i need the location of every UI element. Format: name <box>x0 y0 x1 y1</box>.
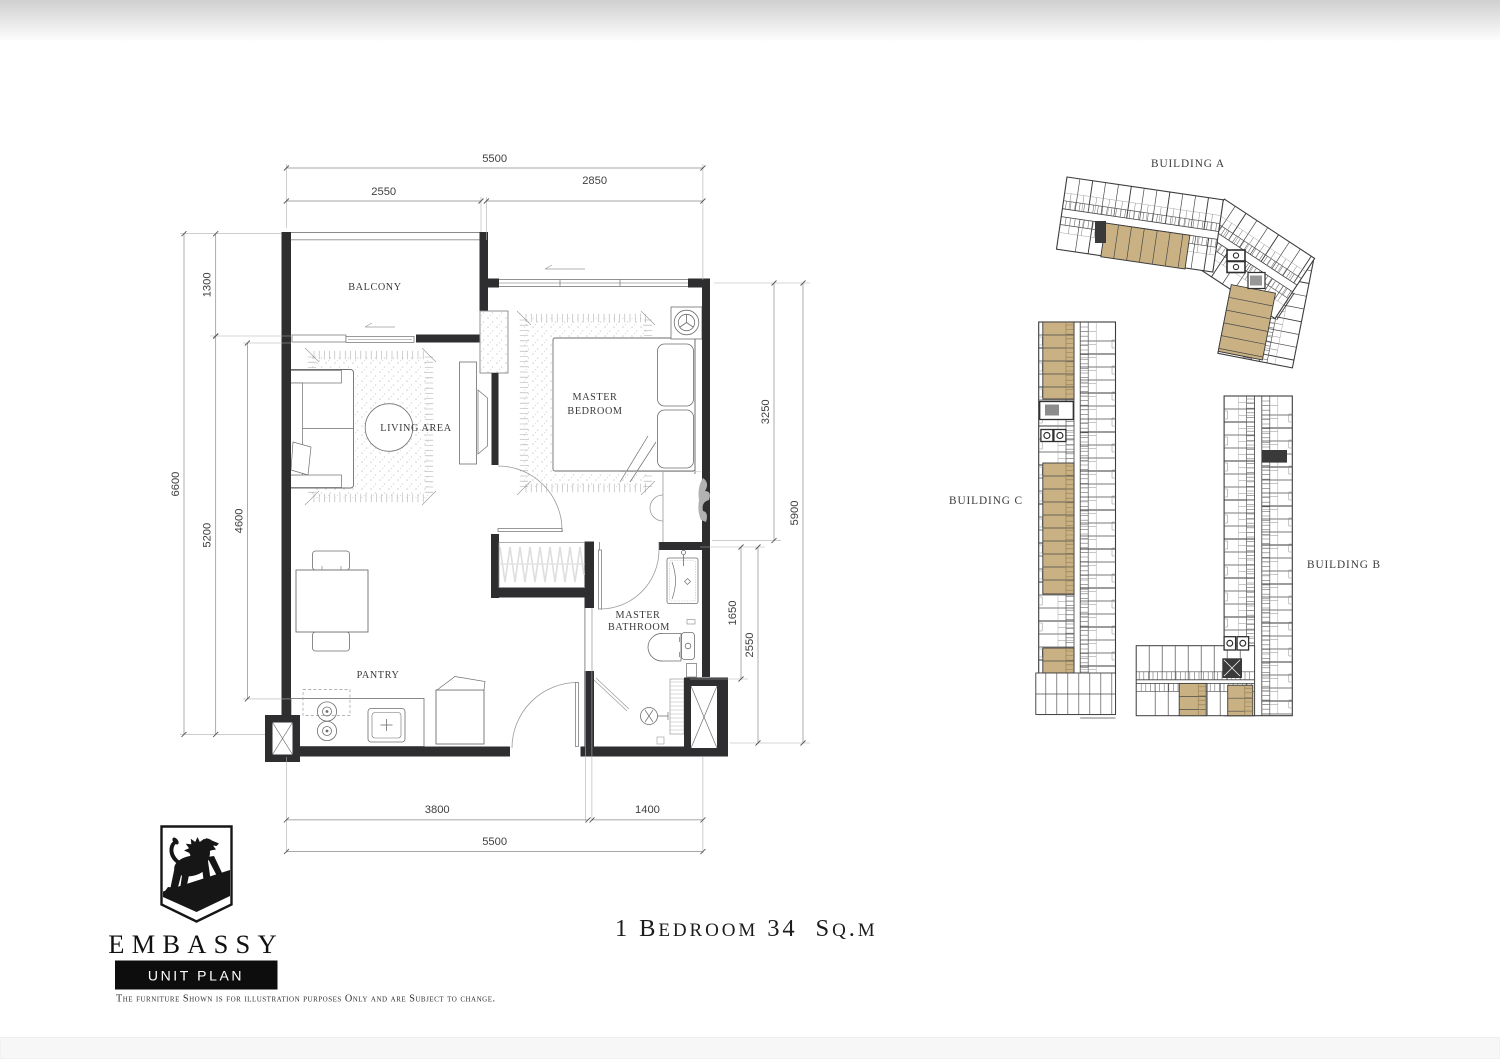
svg-text:PANTRY: PANTRY <box>357 670 400 681</box>
svg-text:BATHROOM: BATHROOM <box>608 622 670 633</box>
svg-text:1400: 1400 <box>635 804 660 816</box>
svg-text:2550: 2550 <box>744 633 756 658</box>
svg-text:1300: 1300 <box>202 272 214 297</box>
svg-text:LIVING AREA: LIVING AREA <box>380 423 451 434</box>
svg-text:5200: 5200 <box>202 523 214 548</box>
svg-text:The furniture Shown is for ill: The furniture Shown is for illustration … <box>116 994 496 1005</box>
svg-text:BUILDING B: BUILDING B <box>1307 559 1381 571</box>
svg-text:MASTER: MASTER <box>573 392 618 403</box>
svg-text:5500: 5500 <box>482 836 507 848</box>
svg-text:5500: 5500 <box>482 153 507 165</box>
svg-text:BALCONY: BALCONY <box>348 282 401 293</box>
svg-text:2550: 2550 <box>371 186 396 198</box>
svg-text:2850: 2850 <box>582 175 607 187</box>
svg-text:UNIT PLAN: UNIT PLAN <box>148 968 244 984</box>
svg-text:BEDROOM: BEDROOM <box>567 406 622 417</box>
svg-text:6600: 6600 <box>170 472 182 497</box>
svg-text:1 BEDROOM 34 SQ.M: 1 BEDROOM 34 SQ.M <box>615 915 878 942</box>
svg-text:EMBASSY: EMBASSY <box>108 929 284 959</box>
svg-text:3800: 3800 <box>425 804 450 816</box>
svg-text:5900: 5900 <box>789 501 801 526</box>
svg-text:BUILDING A: BUILDING A <box>1151 158 1225 170</box>
svg-text:3250: 3250 <box>760 399 772 424</box>
svg-text:MASTER: MASTER <box>616 610 661 621</box>
svg-text:1650: 1650 <box>727 601 739 626</box>
svg-text:4600: 4600 <box>233 509 245 534</box>
svg-text:BUILDING C: BUILDING C <box>949 495 1023 507</box>
